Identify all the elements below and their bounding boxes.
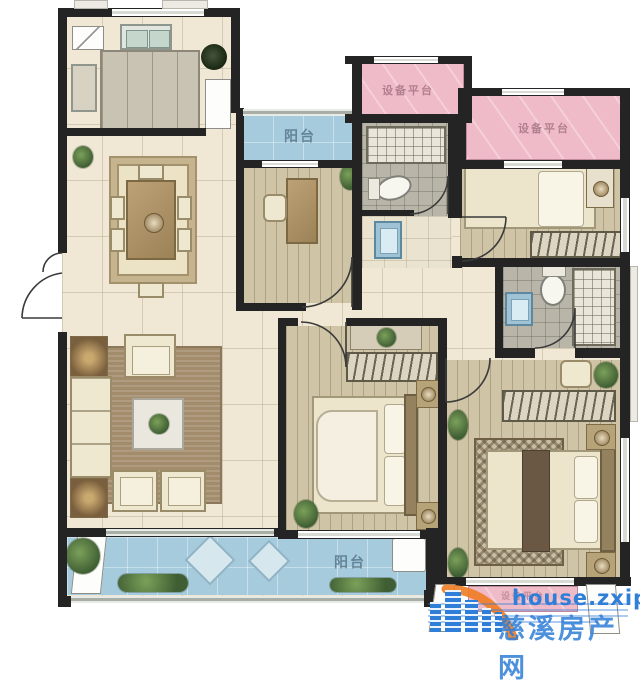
bedroom-3-door-arc xyxy=(301,322,346,367)
master-door-arc xyxy=(446,358,490,402)
door-panel xyxy=(586,584,620,634)
entry-door-arc xyxy=(43,253,62,272)
door-arcs-layer xyxy=(0,0,640,640)
study-door-arc xyxy=(302,257,352,307)
floorplan: 阳台 阳台 设备平台 设备平台 设备平台 house.zxip.com 慈溪房产… xyxy=(0,0,640,640)
bathroom-2-door-arc xyxy=(535,308,575,348)
entry-door-arc xyxy=(22,273,62,318)
bedroom-2-door-arc xyxy=(462,217,506,261)
bathroom-1-door-arc xyxy=(410,176,448,214)
